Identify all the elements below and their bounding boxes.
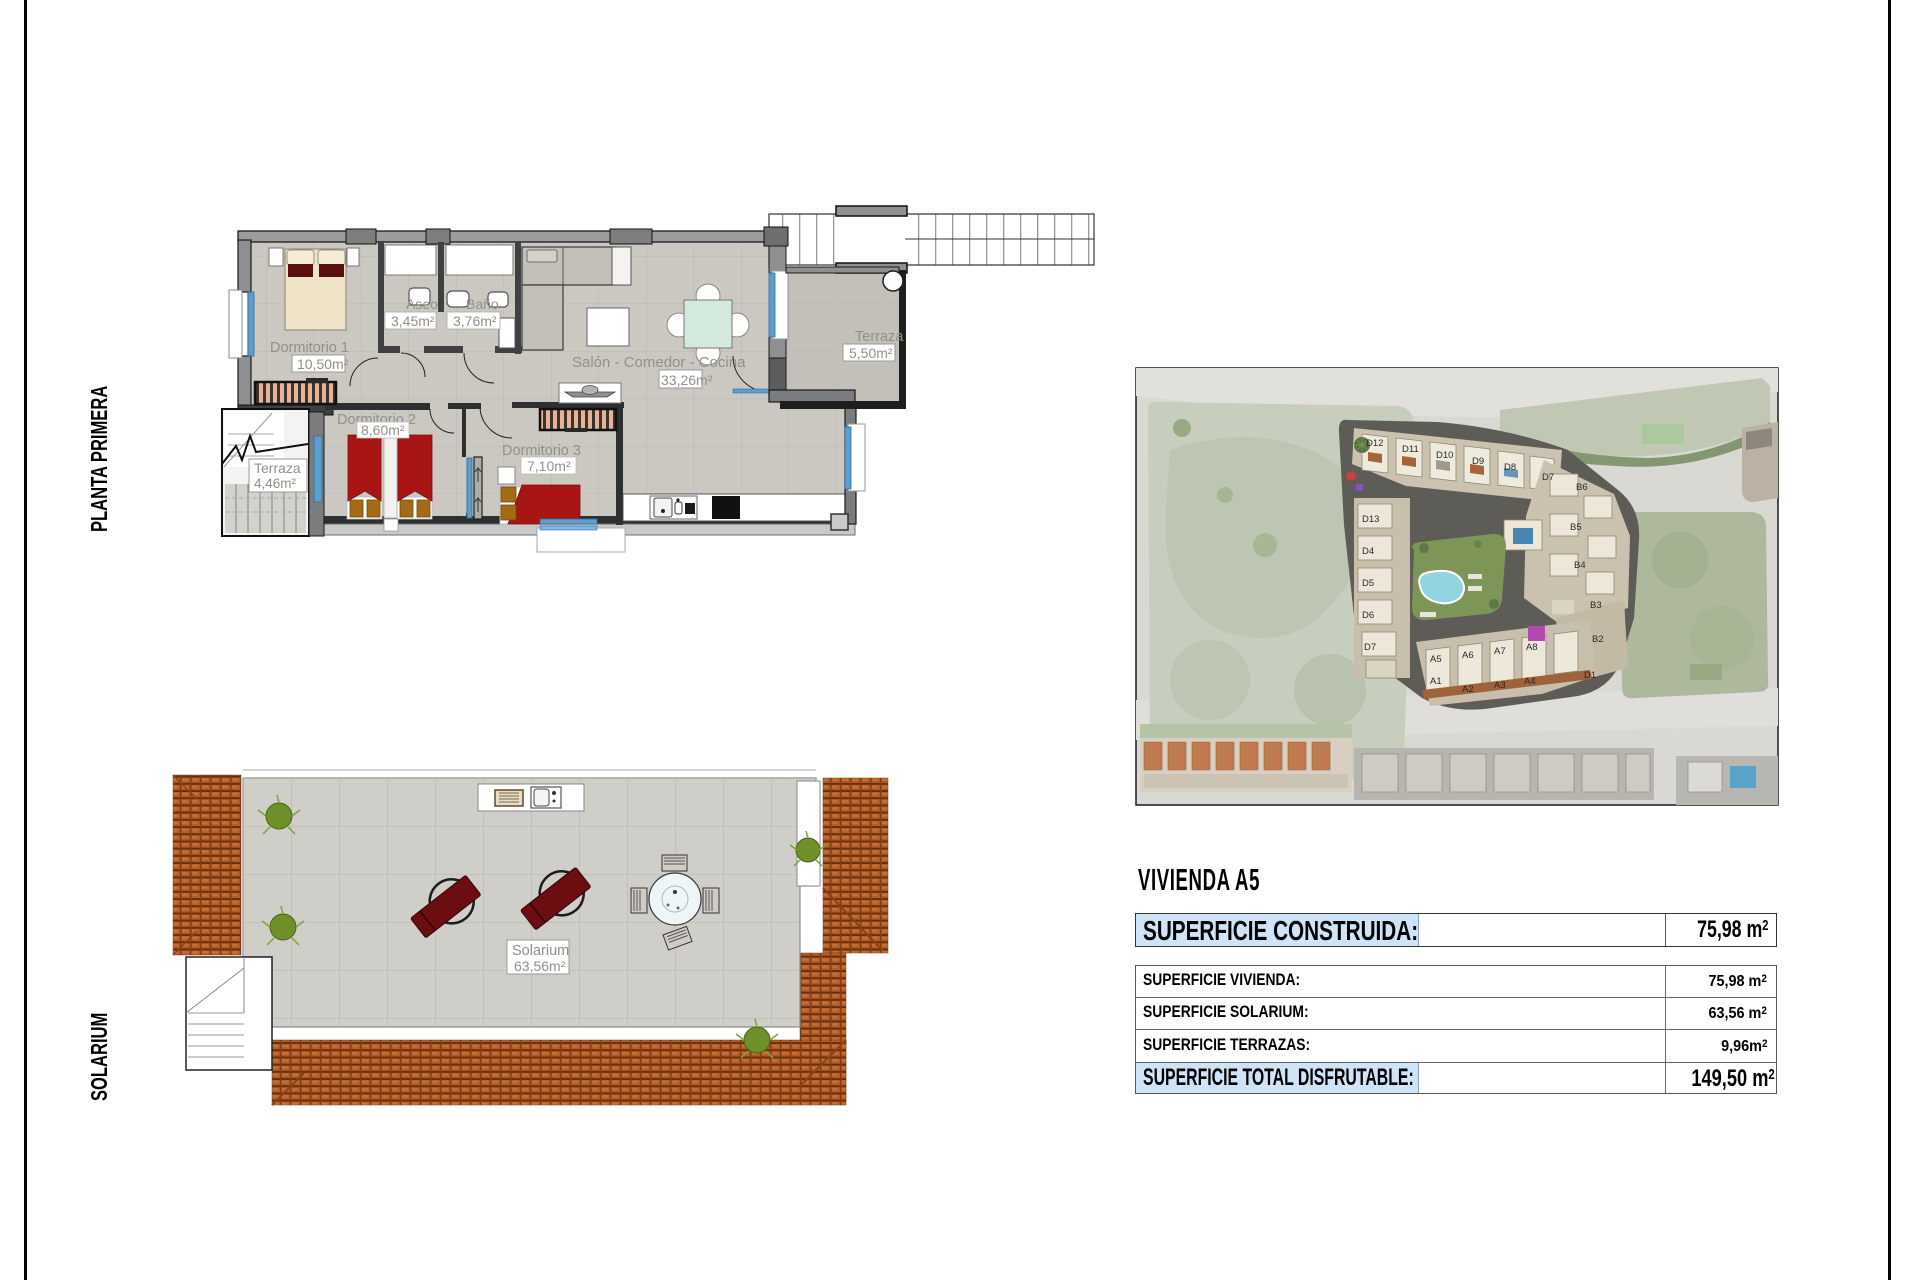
svg-text:Terraza: Terraza — [855, 329, 904, 345]
svg-text:Dormitorio 1: Dormitorio 1 — [270, 340, 349, 356]
svg-text:5,50m²: 5,50m² — [849, 345, 893, 361]
svg-text:3,45m²: 3,45m² — [391, 313, 435, 329]
svg-text:33,26m²: 33,26m² — [661, 372, 713, 388]
svg-text:Baño: Baño — [466, 296, 499, 312]
svg-text:4,46m²: 4,46m² — [254, 476, 297, 491]
svg-text:63,56m²: 63,56m² — [514, 958, 566, 974]
svg-text:Terraza: Terraza — [254, 460, 301, 476]
svg-text:3,76m²: 3,76m² — [453, 313, 497, 329]
svg-text:Aseo: Aseo — [406, 296, 438, 312]
svg-text:Salón - Comedor - Cocina: Salón - Comedor - Cocina — [572, 354, 746, 371]
svg-text:10,50m²: 10,50m² — [297, 356, 349, 372]
svg-text:Solarium: Solarium — [512, 943, 569, 959]
svg-text:8,60m²: 8,60m² — [361, 422, 405, 438]
svg-text:7,10m²: 7,10m² — [527, 458, 571, 474]
